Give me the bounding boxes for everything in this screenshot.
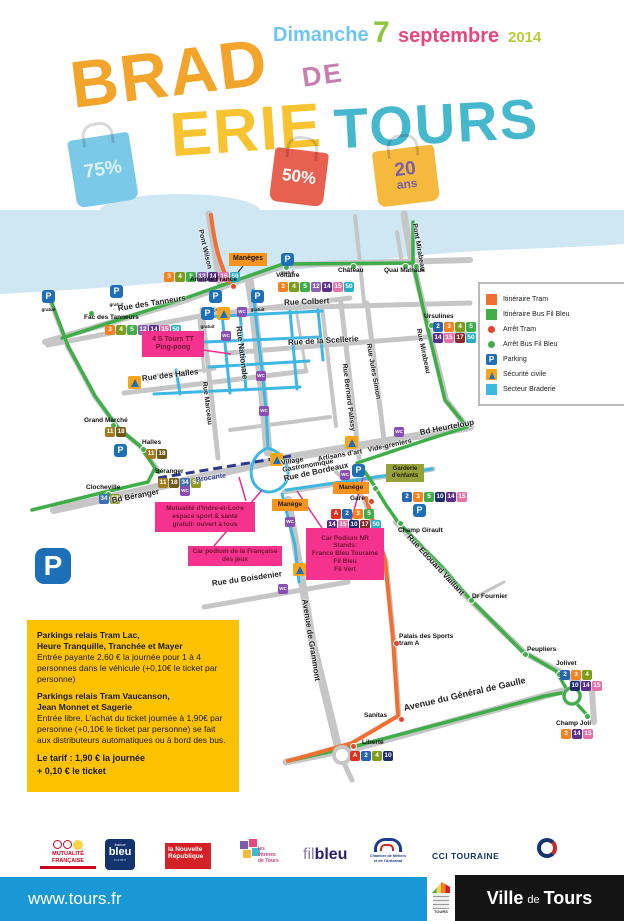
anniversary-bag-20-ans: 20 ans bbox=[372, 144, 440, 207]
bleu-text: bleu bbox=[315, 846, 348, 863]
triangle-icon bbox=[220, 310, 228, 318]
poster-header: Dimanche 7 septembre 2014 BRAD DE ERIE T… bbox=[0, 0, 624, 210]
securite-civile-icon bbox=[293, 563, 306, 576]
cma-text: Chambre de Métiers et de l'Artisanat bbox=[368, 854, 408, 863]
bus-line-badge: 11 bbox=[146, 449, 156, 459]
mutualite-text-1: MUTUALITÉ bbox=[52, 851, 84, 857]
parking-icon: P bbox=[413, 504, 426, 517]
bus-line-badge: 50 bbox=[466, 333, 476, 343]
bus-line-badge: 4 bbox=[175, 272, 185, 282]
wc-icon: WC bbox=[340, 470, 350, 480]
footer-url-bar: www.tours.fr bbox=[0, 877, 427, 921]
bus-line-badge: 12 bbox=[311, 282, 321, 292]
mutualite-text-2: FRANÇAISE bbox=[52, 858, 84, 864]
mutualite-icon bbox=[40, 840, 96, 850]
parking-info-body-2: Entrée libre, L'achat du ticket journée … bbox=[37, 713, 229, 746]
tram-stop-swatch bbox=[488, 326, 495, 333]
partner-logos-strip: MUTUALITÉ FRANÇAISE france bleu touraine… bbox=[0, 830, 624, 877]
parking-sublabel: gratuit bbox=[42, 303, 56, 316]
bus-stop-dot bbox=[584, 713, 591, 720]
tours-text: Tours bbox=[544, 888, 593, 909]
event-callout-box: Manèges bbox=[229, 253, 267, 266]
wc-icon: WC bbox=[259, 406, 269, 416]
discount-bag-75: 75% bbox=[67, 132, 139, 209]
bus-line-badge: 17 bbox=[455, 333, 465, 343]
event-callout-box: 4 S Tours TT Ping-pong bbox=[142, 331, 204, 357]
parking-icon: P3€/jour bbox=[352, 464, 365, 477]
bus-line-badge: 10 bbox=[570, 681, 580, 691]
france-bleu-main: bleu bbox=[105, 847, 135, 858]
triangle-icon bbox=[489, 372, 495, 379]
tram-stop-dot bbox=[398, 716, 405, 723]
stop-label: Sanitas bbox=[364, 712, 387, 719]
parking-info-body-1: Entrée payante 2,60 € la journée pour 1 … bbox=[37, 652, 229, 685]
bus-line-badge: 15 bbox=[444, 333, 454, 343]
bus-route-swatch bbox=[486, 309, 497, 320]
cci-text: CCI TOURAINE bbox=[432, 851, 499, 861]
bus-line-badge: 2 bbox=[361, 751, 371, 761]
legend-label: Parking bbox=[503, 356, 527, 363]
stop-label: Anatole France bbox=[190, 276, 237, 283]
bus-line-badge: 5 bbox=[466, 322, 476, 332]
bus-line-badge: A bbox=[350, 751, 360, 761]
vitrines-text: les vitrines de Tours bbox=[258, 847, 279, 864]
event-callout-box: Manège bbox=[272, 499, 308, 511]
stop-label: Palais des Sports tram A bbox=[399, 633, 453, 647]
bus-line-badge: 14 bbox=[572, 729, 582, 739]
grid-icon bbox=[433, 893, 449, 909]
parking-icon: Pgratuit bbox=[281, 253, 294, 266]
nouvelle-republique-logo: la Nouvelle République bbox=[165, 843, 211, 869]
bus-line-badge: 11 bbox=[158, 478, 168, 488]
stop-label: Liberté bbox=[362, 739, 384, 746]
discount-bag-50: 50% bbox=[269, 147, 329, 207]
bus-line-badge: 5 bbox=[424, 492, 434, 502]
tours-city-logo: TOURS bbox=[427, 877, 455, 921]
legend-row-braderie: Secteur Braderie bbox=[486, 382, 624, 396]
parking-icon: Pgratuit bbox=[201, 307, 214, 320]
braderie-sector-swatch bbox=[486, 384, 497, 395]
parking-info-box: Parkings relais Tram Lac, Heure Tranquil… bbox=[27, 620, 239, 792]
street-label: Rue Colbert bbox=[284, 297, 330, 307]
date-month: septembre bbox=[398, 25, 499, 48]
parking-icon: Pgratuit bbox=[251, 290, 264, 303]
legend-label: Itinéraire Tram bbox=[503, 296, 548, 303]
vitrines-square bbox=[243, 850, 251, 858]
bus-line-badge: 10 bbox=[435, 492, 445, 502]
vitrines-square bbox=[240, 841, 248, 849]
bus-line-badge: 4 bbox=[116, 325, 126, 335]
event-callout-box: Car podium de la Française des jeux bbox=[188, 546, 282, 566]
bus-line-badge: 14 bbox=[322, 282, 332, 292]
stop-label: Champ Girault bbox=[398, 527, 443, 534]
france-bleu-sub: touraine bbox=[105, 858, 135, 862]
legend-label: Arrêt Tram bbox=[503, 326, 536, 333]
bus-line-badge: 5 bbox=[364, 509, 374, 519]
bus-line-badge: 4 bbox=[582, 670, 592, 680]
parking-info-heading-1: Parkings relais Tram Lac, Heure Tranquil… bbox=[37, 630, 229, 652]
parking-icon: P bbox=[486, 354, 497, 365]
bus-line-badge: 3 bbox=[105, 325, 115, 335]
bus-line-badge: 18 bbox=[116, 427, 126, 437]
bus-stop-dot bbox=[372, 485, 379, 492]
mutualite-bar bbox=[40, 866, 96, 869]
bus-line-badge: 14 bbox=[581, 681, 591, 691]
vitrines-square bbox=[249, 839, 257, 847]
fil-bleu-logo: filbleu bbox=[303, 846, 347, 864]
legend-row-tram-route: Itinéraire Tram bbox=[486, 292, 624, 306]
braderie-poster: Dimanche 7 septembre 2014 BRAD DE ERIE T… bbox=[0, 0, 624, 921]
bus-line-badge: 3 bbox=[571, 670, 581, 680]
bus-line-badge: 18 bbox=[157, 449, 167, 459]
stop-label: Gare bbox=[350, 495, 365, 502]
title-tours: TOURS bbox=[333, 91, 541, 158]
date-year: 2014 bbox=[508, 29, 541, 46]
parking-sublabel: gratuit bbox=[251, 303, 265, 316]
legend-row-tram-stop: Arrêt Tram bbox=[486, 322, 624, 336]
bus-line-badge: 15 bbox=[457, 492, 467, 502]
ville-text: Ville bbox=[487, 888, 524, 909]
roundabout-liberte bbox=[334, 747, 350, 763]
bus-line-badge: 2 bbox=[342, 509, 352, 519]
bus-line-badge: 3 bbox=[413, 492, 423, 502]
bus-line-badge: 50 bbox=[344, 282, 354, 292]
stop-label: Ursulines bbox=[424, 313, 454, 320]
triangle-icon bbox=[131, 379, 139, 387]
parking-icon: Pgratuit bbox=[42, 290, 55, 303]
event-callout-box: Manège bbox=[333, 482, 369, 494]
poster-body: { "theme": { "css_vars": "--tram:#f26f31… bbox=[0, 0, 624, 921]
parking-icon: Pgratuit bbox=[110, 285, 123, 298]
bus-line-badge: 5 bbox=[127, 325, 137, 335]
stop-label: Clocheville bbox=[86, 484, 120, 491]
triangle-icon bbox=[348, 439, 356, 447]
stop-label: Fac des Tanneurs bbox=[84, 314, 139, 321]
fil-text: fil bbox=[303, 846, 315, 863]
date-day: Dimanche bbox=[273, 24, 369, 47]
parking-icon: P bbox=[114, 444, 127, 457]
wc-icon: WC bbox=[394, 427, 404, 437]
tram-stop-dot bbox=[350, 743, 357, 750]
bus-line-badge: 3 bbox=[278, 282, 288, 292]
event-callout-box: Mutualité d'Indre-et-Loire espace sport … bbox=[155, 502, 255, 532]
tram-route-swatch bbox=[486, 294, 497, 305]
bus-line-badge: 2 bbox=[560, 670, 570, 680]
securite-civile-icon bbox=[486, 369, 497, 380]
ville-de-tours-block: Ville de Tours bbox=[455, 875, 624, 921]
tours-logo-text: TOURS bbox=[427, 909, 455, 914]
tours-website-link[interactable]: www.tours.fr bbox=[28, 889, 122, 909]
bus-line-badge: 3 bbox=[561, 729, 571, 739]
stop-label: Quai Malraux bbox=[384, 267, 425, 274]
bus-line-badge: 11 bbox=[105, 427, 115, 437]
securite-civile-icon bbox=[128, 376, 141, 389]
france-bleu-logo: france bleu touraine bbox=[105, 839, 135, 870]
legend-row-bus-stop: Arrêt Bus Fil Bleu bbox=[486, 337, 624, 351]
bus-line-badge: 3 bbox=[353, 509, 363, 519]
rainbow-roof-icon bbox=[432, 882, 450, 893]
bus-line-badge: 2 bbox=[433, 322, 443, 332]
bag-50-label: 50% bbox=[281, 165, 317, 189]
legend-label: Sécurité civile bbox=[503, 371, 546, 378]
triangle-icon bbox=[296, 566, 304, 574]
legend-row-securite: Sécurité civile bbox=[486, 367, 624, 381]
event-callout-box: Garderie d'enfants bbox=[386, 464, 424, 482]
bus-line-badge: 3 bbox=[444, 322, 454, 332]
triangle-icon bbox=[273, 456, 281, 464]
legend-row-parking: P Parking bbox=[486, 352, 624, 366]
bag-75-label: 75% bbox=[82, 156, 123, 184]
title-de: DE bbox=[300, 59, 345, 92]
wc-icon: WC bbox=[256, 371, 266, 381]
legend-label: Itinéraire Bus Fil Bleu bbox=[503, 311, 570, 318]
bus-line-badge: 4 bbox=[289, 282, 299, 292]
bus-line-badge: 5 bbox=[300, 282, 310, 292]
bus-line-badge: 10 bbox=[383, 751, 393, 761]
cci-glyph-icon bbox=[537, 838, 557, 858]
tram-stop-dot bbox=[368, 498, 375, 505]
bus-line-badge: 2 bbox=[402, 492, 412, 502]
stop-label: Voltaire bbox=[276, 272, 299, 279]
wc-icon: WC bbox=[285, 517, 295, 527]
bus-line-badge: 4 bbox=[372, 751, 382, 761]
parking-icon: P3€/jour bbox=[209, 290, 222, 303]
parking-info-heading-2: Parkings relais Tram Vaucanson, Jean Mon… bbox=[37, 691, 229, 713]
bus-line-badge: 15 bbox=[592, 681, 602, 691]
stop-label: Grand Marché bbox=[84, 417, 128, 424]
bus-line-badge: 4 bbox=[455, 322, 465, 332]
city-map: 3451214155034512141550345121415502345141… bbox=[0, 210, 624, 830]
tram-stop-dot bbox=[230, 283, 237, 290]
legend-label: Arrêt Bus Fil Bleu bbox=[503, 341, 557, 348]
bus-line-badge: 15 bbox=[583, 729, 593, 739]
legend-label: Secteur Braderie bbox=[503, 386, 556, 393]
stop-label: Dr Fournier bbox=[472, 593, 507, 600]
bus-line-badge: 15 bbox=[333, 282, 343, 292]
securite-civile-icon bbox=[217, 307, 230, 320]
cma-arc-icon bbox=[374, 838, 402, 852]
wc-icon: WC bbox=[180, 486, 190, 496]
stop-label: Peupliers bbox=[527, 646, 556, 653]
stop-label: Béranger bbox=[155, 468, 184, 475]
mutualite-francaise-logo: MUTUALITÉ FRANÇAISE bbox=[40, 840, 96, 869]
de-text: de bbox=[527, 894, 539, 906]
bus-line-badge: 14 bbox=[446, 492, 456, 502]
wc-icon: WC bbox=[221, 331, 231, 341]
stop-label: Jolivet bbox=[556, 660, 577, 667]
stop-label: Château bbox=[338, 267, 364, 274]
bus-line-badge: 18 bbox=[169, 478, 179, 488]
bus-stop-dot bbox=[397, 520, 404, 527]
bus-line-badge: 14 bbox=[433, 333, 443, 343]
parking-tariff: Le tarif : 1,90 € la journée + 0,10 € le… bbox=[37, 752, 229, 776]
bus-line-badge: 34 bbox=[99, 494, 109, 504]
stop-label: Champ Joli bbox=[556, 720, 591, 727]
wc-icon: WC bbox=[278, 584, 288, 594]
parking-p-icon: P bbox=[35, 548, 71, 584]
bus-line-badge: A bbox=[331, 509, 341, 519]
bag-ans-label: ans bbox=[396, 178, 418, 192]
wc-icon: WC bbox=[237, 307, 247, 317]
cma-logo: Chambre de Métiers et de l'Artisanat bbox=[368, 838, 408, 863]
map-legend: Itinéraire Tram Itinéraire Bus Fil Bleu … bbox=[478, 282, 624, 406]
securite-civile-icon bbox=[345, 436, 358, 449]
bus-stop-swatch bbox=[488, 341, 495, 348]
bag-handle bbox=[80, 120, 115, 148]
bus-line-badge: 3 bbox=[164, 272, 174, 282]
event-callout-box: Car Podium NR Stands: France Bleu Tourai… bbox=[306, 528, 384, 580]
legend-row-bus-route: Itinéraire Bus Fil Bleu bbox=[486, 307, 624, 321]
stop-label: Halles bbox=[142, 439, 161, 446]
date-day-number: 7 bbox=[373, 16, 390, 50]
